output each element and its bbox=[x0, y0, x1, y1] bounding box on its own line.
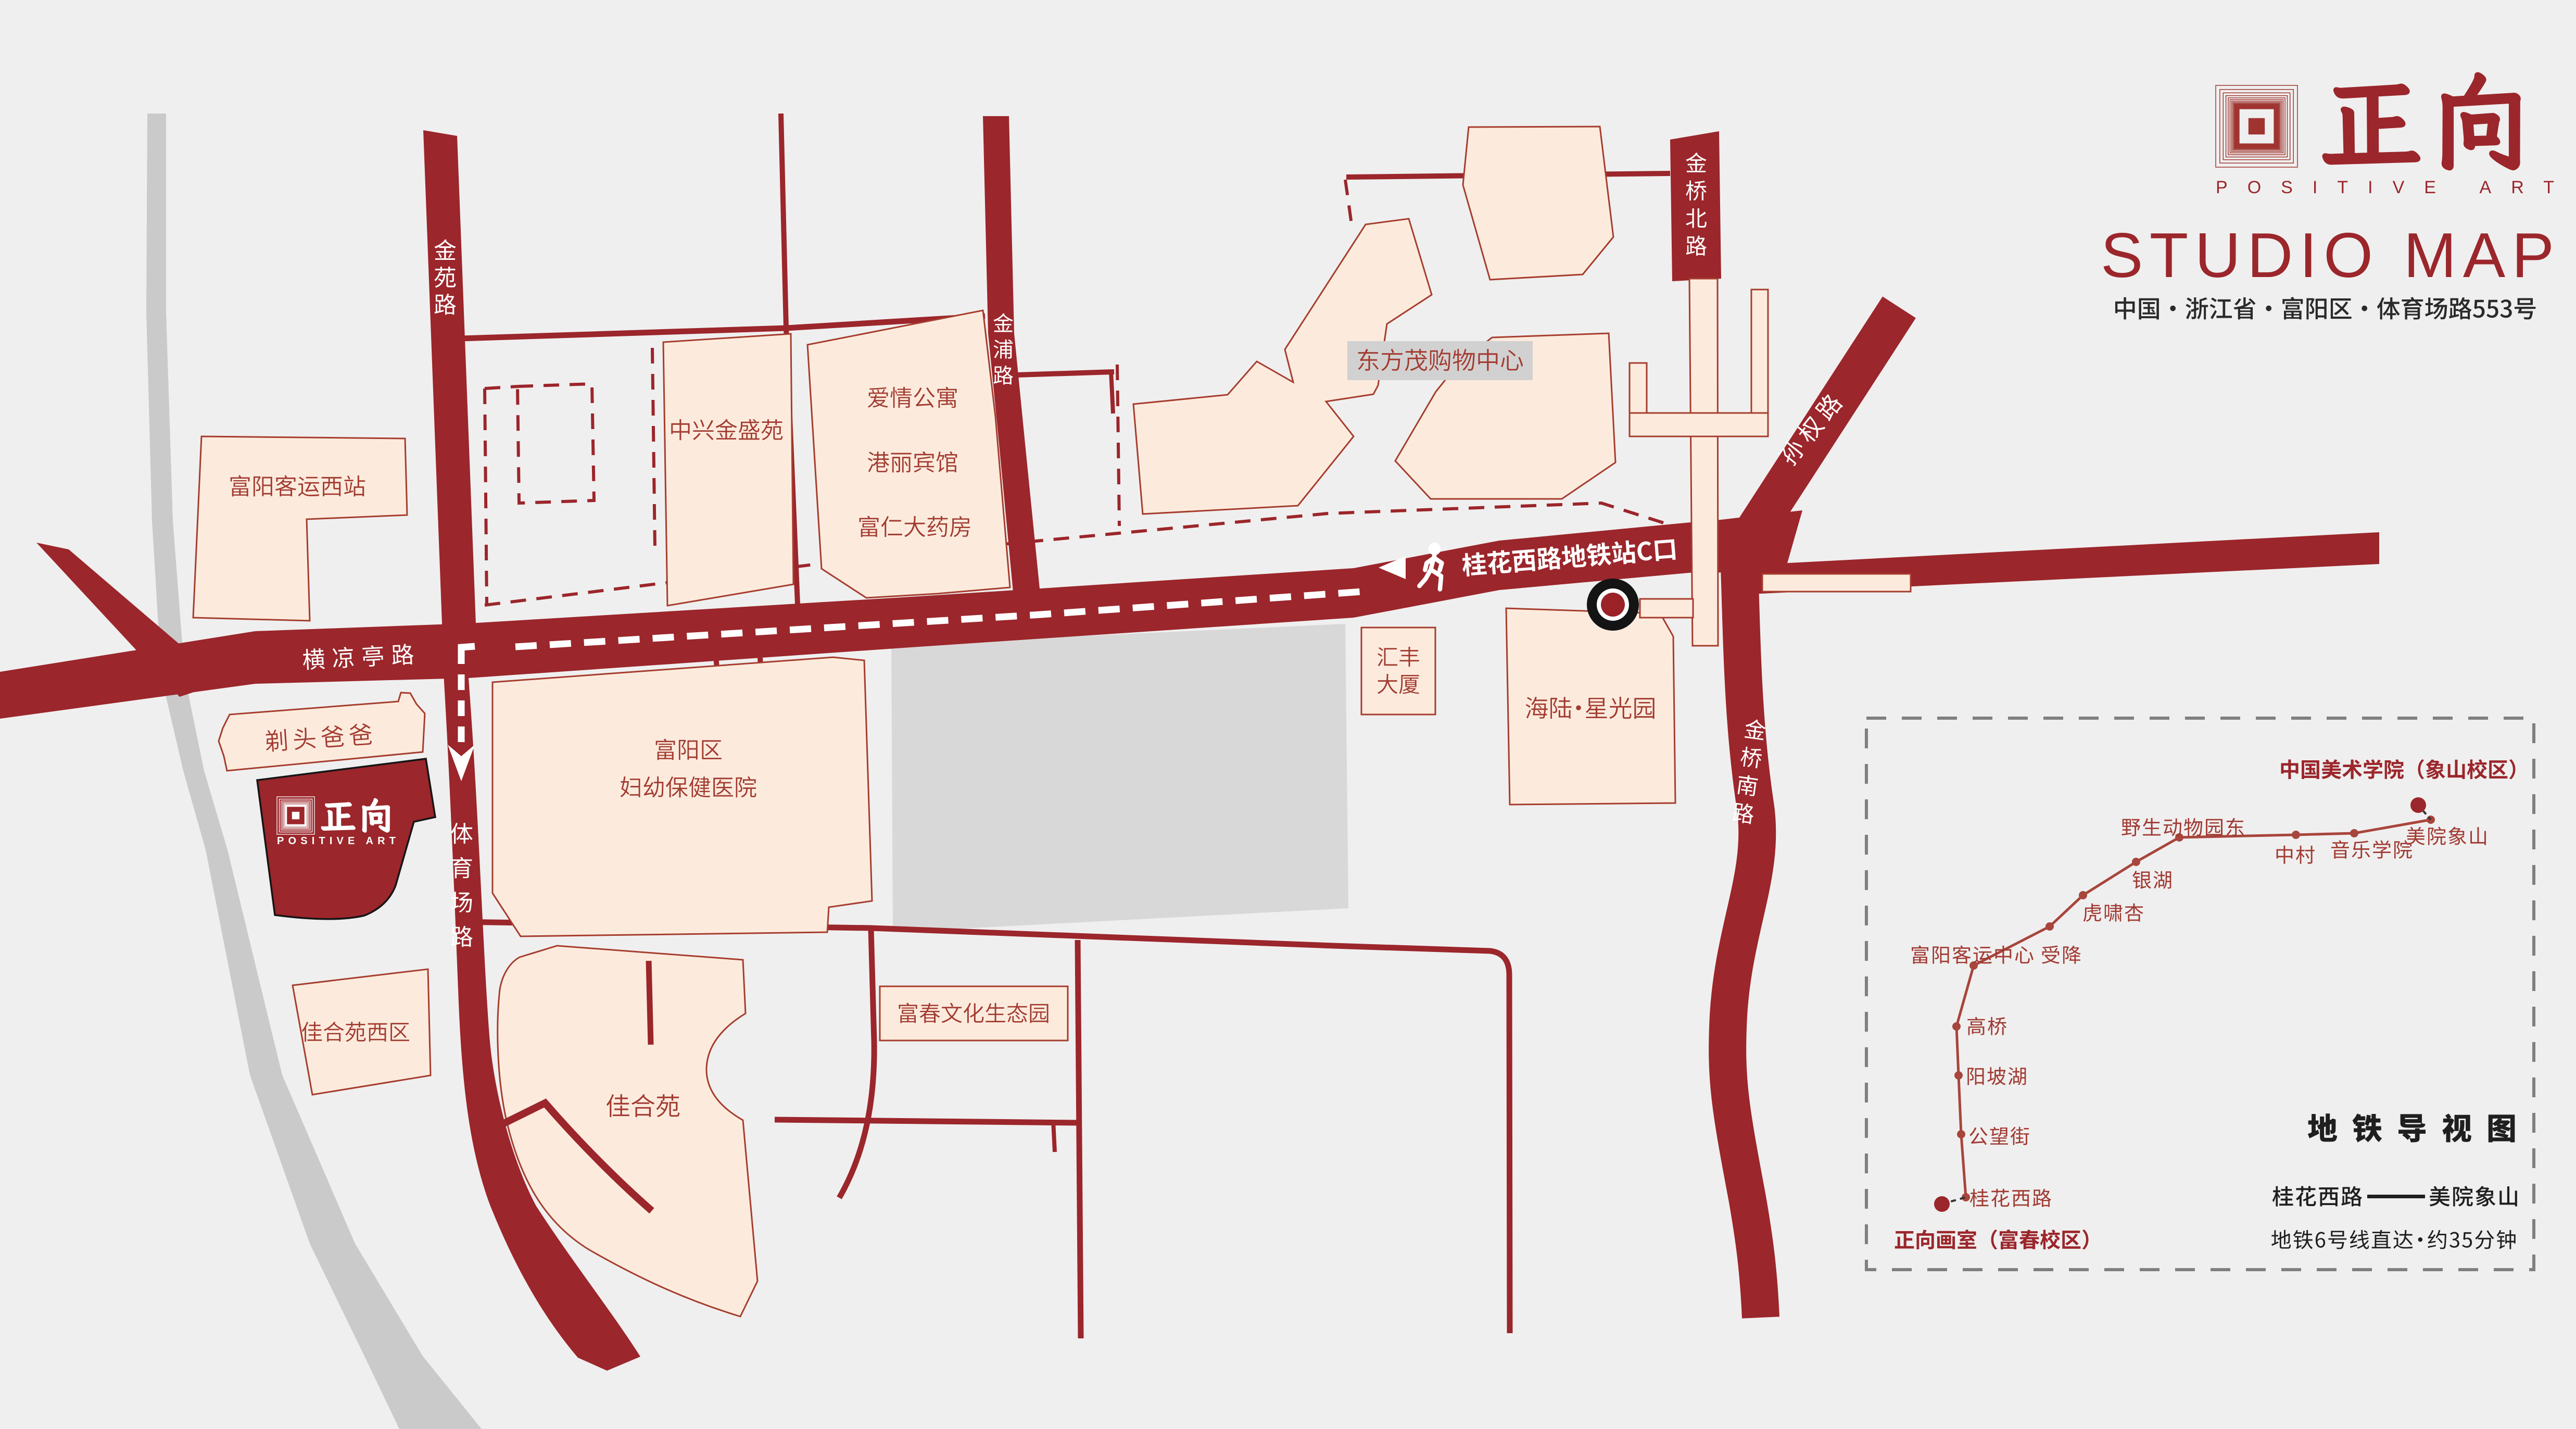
svg-text:POSITIVE ART: POSITIVE ART bbox=[277, 835, 396, 847]
svg-text:STUDIO MAP: STUDIO MAP bbox=[2101, 220, 2554, 291]
